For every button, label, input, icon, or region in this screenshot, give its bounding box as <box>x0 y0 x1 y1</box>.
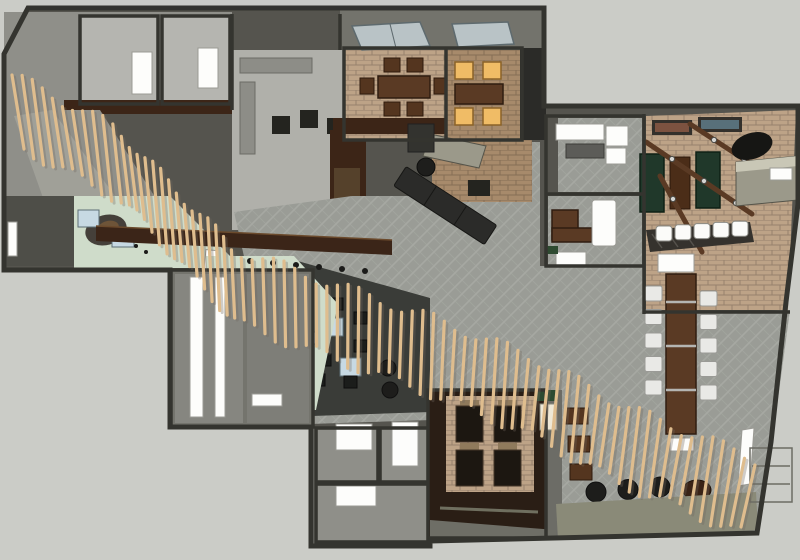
skylight <box>452 22 514 47</box>
entry-vestibule <box>6 196 74 266</box>
bar-stool <box>732 221 748 236</box>
low-table <box>566 144 604 158</box>
fixture <box>252 394 282 406</box>
prep-table <box>272 116 290 134</box>
stool-dot <box>362 268 368 274</box>
white-chair <box>606 148 626 164</box>
kitchen-counter <box>240 58 312 73</box>
ceiling-slat <box>368 295 369 373</box>
desk-return <box>552 228 592 242</box>
stool-dot <box>339 266 345 272</box>
door-panel <box>198 48 218 88</box>
service-station <box>408 124 434 152</box>
window <box>8 222 17 256</box>
chair <box>384 58 400 72</box>
ledge-cushion <box>770 168 792 180</box>
bar-stool <box>656 226 672 241</box>
chair <box>700 362 717 377</box>
ceiling-slat <box>399 312 401 377</box>
bench <box>556 252 586 265</box>
chair <box>645 380 662 395</box>
ceiling-slat <box>358 287 359 372</box>
booth-table <box>494 450 521 486</box>
round-table <box>417 158 435 176</box>
ceiling-slat <box>295 268 296 346</box>
chair <box>700 385 717 400</box>
bar-stool <box>713 222 729 237</box>
chair <box>645 357 662 372</box>
pouf <box>586 482 606 502</box>
ceiling-slat <box>284 261 286 347</box>
door-panel <box>132 52 152 94</box>
bar-stool <box>675 225 691 240</box>
white-cabinet <box>592 200 616 246</box>
dining-table <box>378 76 430 98</box>
door-panel <box>336 486 376 506</box>
white-chair <box>606 126 628 146</box>
pouf <box>382 382 398 398</box>
ceiling-slat <box>273 258 275 342</box>
chair <box>360 78 374 94</box>
chair <box>384 102 400 116</box>
low-table <box>468 180 490 196</box>
bar-stool <box>694 224 710 239</box>
meeting-room-lower <box>546 196 642 265</box>
sideboard <box>658 254 694 272</box>
chair <box>570 464 592 480</box>
plant <box>546 246 558 254</box>
floorplan-render <box>0 0 800 560</box>
ceiling-slat <box>379 304 381 372</box>
chair <box>700 291 717 306</box>
ceiling-slat <box>389 310 391 372</box>
stool <box>344 376 357 388</box>
ceiling-slat <box>316 284 317 346</box>
kitchen-counter <box>240 82 255 154</box>
communal-table <box>666 274 696 434</box>
dining-table <box>455 84 503 104</box>
booth-table <box>456 406 483 442</box>
floorplan-viewport[interactable] <box>0 0 800 560</box>
side-table <box>78 210 99 227</box>
games-room <box>640 110 798 310</box>
chair <box>407 58 423 72</box>
chair <box>645 286 662 301</box>
meeting-room-upper <box>556 118 642 192</box>
ceiling-slat <box>305 277 306 345</box>
door-panel <box>190 277 203 417</box>
chair <box>700 338 717 353</box>
chair <box>407 102 423 116</box>
chair <box>700 315 717 330</box>
prep-table <box>300 110 318 128</box>
stool-dot <box>316 264 322 270</box>
white-sofa <box>556 124 604 140</box>
chair <box>645 333 662 348</box>
booth-table <box>456 450 483 486</box>
